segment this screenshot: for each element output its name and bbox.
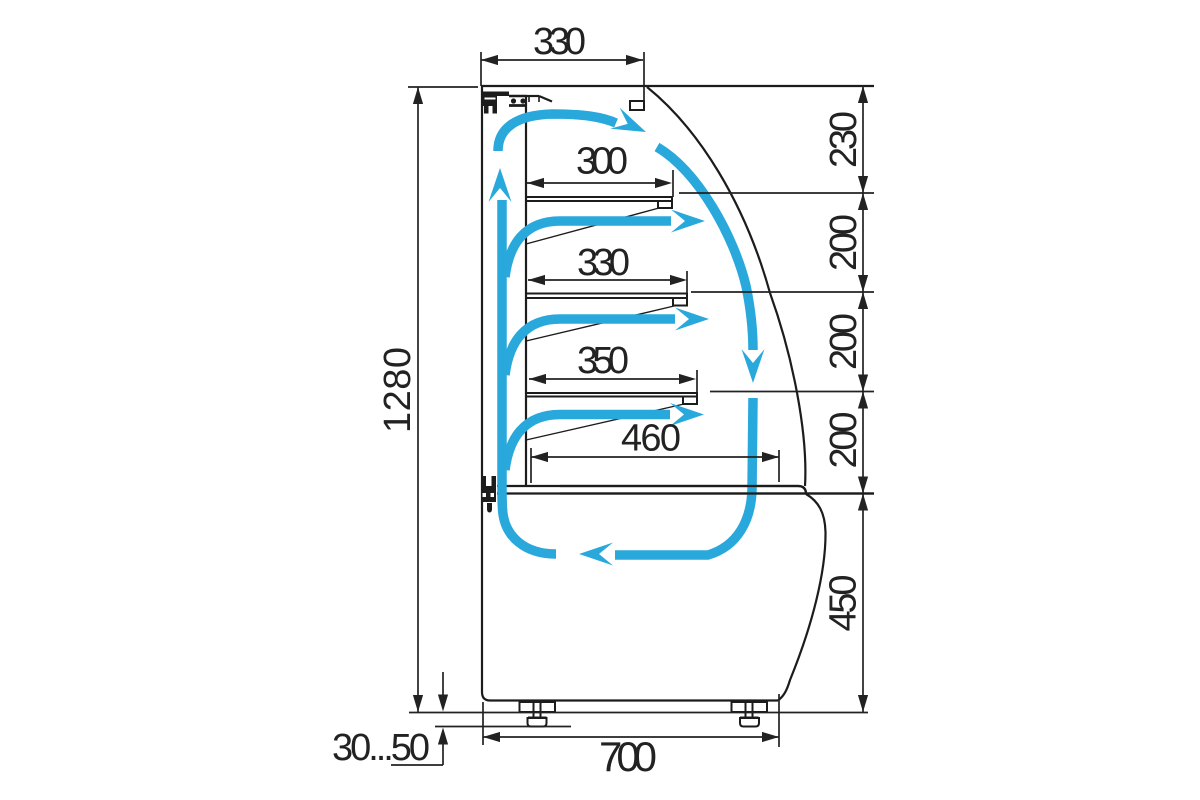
svg-text:200: 200 (823, 412, 865, 469)
svg-text:200: 200 (823, 313, 865, 370)
svg-text:700: 700 (599, 733, 657, 780)
svg-text:460: 460 (621, 418, 681, 460)
svg-text:30...50: 30...50 (332, 727, 430, 769)
svg-text:230: 230 (823, 111, 865, 168)
svg-text:200: 200 (823, 214, 865, 271)
svg-text:450: 450 (823, 575, 865, 632)
svg-text:330: 330 (533, 21, 586, 63)
svg-text:1280: 1280 (377, 347, 419, 433)
svg-text:300: 300 (576, 141, 628, 183)
svg-text:350: 350 (577, 340, 629, 382)
svg-text:330: 330 (577, 242, 630, 284)
